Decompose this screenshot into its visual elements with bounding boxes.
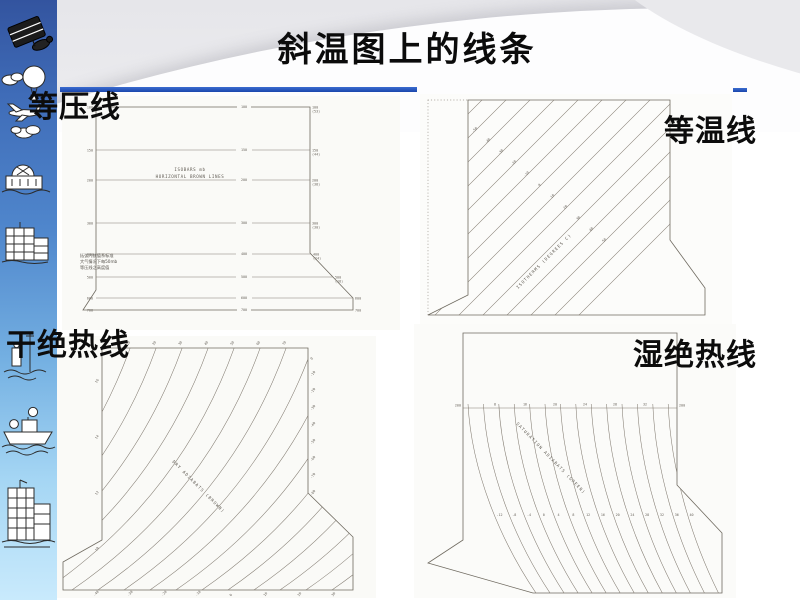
svg-text:-12: -12	[496, 513, 502, 517]
svg-text:-60: -60	[310, 455, 317, 462]
svg-text:(38): (38)	[312, 183, 320, 187]
moist-adiabat-label: 湿绝热线	[633, 330, 757, 374]
svg-text:24: 24	[583, 403, 587, 407]
dry-adiabat-label: 干绝热线	[6, 320, 130, 364]
isobars-diagram: 100100100(53)150150150(44)200200200(38)3…	[60, 98, 390, 330]
svg-text:20: 20	[152, 340, 158, 346]
svg-text:36: 36	[675, 513, 679, 517]
svg-text:(53): (53)	[312, 110, 320, 114]
isotherms-caption: ISOTHERMS (DEGREES C)	[515, 232, 572, 289]
cloud-icon-2	[11, 126, 40, 138]
svg-text:50: 50	[230, 340, 236, 346]
research-ship-icon	[2, 407, 55, 455]
svg-text:200: 200	[679, 404, 685, 408]
svg-text:括弧内数值系标准: 括弧内数值系标准	[80, 252, 114, 259]
svg-text:(44): (44)	[312, 153, 320, 157]
svg-text:大气情况下每50mb: 大气情况下每50mb	[80, 258, 118, 265]
svg-text:-40: -40	[484, 137, 491, 144]
svg-text:-70: -70	[310, 472, 317, 479]
cloud-icon	[2, 73, 23, 85]
svg-text:10: 10	[550, 193, 556, 199]
svg-text:600: 600	[87, 296, 93, 300]
svg-text:28: 28	[613, 403, 617, 407]
svg-text:100: 100	[241, 105, 247, 109]
svg-text:32: 32	[660, 513, 664, 517]
svg-text:300: 300	[87, 221, 93, 225]
svg-text:50: 50	[601, 237, 607, 243]
svg-text:16: 16	[523, 403, 527, 407]
svg-text:-4: -4	[527, 513, 531, 517]
isobar-label: 等压线	[28, 82, 121, 126]
svg-text:12: 12	[586, 513, 590, 517]
svg-text:500: 500	[87, 275, 93, 279]
svg-text:30: 30	[331, 591, 337, 597]
svg-text:14: 14	[94, 434, 100, 440]
svg-text:200: 200	[455, 404, 461, 408]
svg-text:-30: -30	[127, 590, 134, 597]
svg-text:-50: -50	[310, 438, 317, 445]
svg-text:-50: -50	[471, 126, 478, 133]
svg-text:16: 16	[94, 378, 100, 384]
svg-text:30: 30	[178, 340, 184, 346]
svg-text:-40: -40	[93, 590, 100, 597]
svg-text:300: 300	[241, 221, 247, 225]
isobars-caption-line2: HORIZONTAL BROWN LINES	[156, 174, 225, 179]
dry-adiabats-diagram: 102030405060700-10-20-30-40-50-60-70-80-…	[50, 340, 365, 598]
svg-text:(18): (18)	[335, 280, 343, 284]
svg-text:0: 0	[543, 513, 545, 517]
svg-text:-30: -30	[310, 404, 317, 411]
isotherm-label: 等温线	[664, 106, 757, 150]
svg-text:12: 12	[94, 490, 100, 496]
svg-text:200: 200	[241, 178, 247, 182]
svg-text:40: 40	[204, 340, 210, 346]
svg-text:24: 24	[630, 513, 634, 517]
svg-text:(30): (30)	[312, 226, 320, 230]
svg-text:(24): (24)	[313, 257, 321, 261]
svg-text:400: 400	[241, 252, 247, 256]
svg-text:600: 600	[355, 296, 361, 300]
svg-text:600: 600	[241, 296, 247, 300]
svg-text:30: 30	[575, 215, 581, 221]
svg-text:8: 8	[572, 513, 574, 517]
svg-text:-8: -8	[512, 513, 516, 517]
svg-text:70: 70	[282, 340, 288, 346]
isobars-caption-line1: ISOBARS mb	[174, 167, 205, 172]
svg-text:10: 10	[94, 546, 100, 552]
svg-text:60: 60	[256, 340, 262, 346]
radar-station-icon	[2, 165, 50, 194]
svg-text:700: 700	[87, 308, 93, 312]
svg-text:20: 20	[616, 513, 620, 517]
svg-text:20: 20	[553, 403, 557, 407]
svg-text:700: 700	[355, 308, 361, 312]
svg-text:40: 40	[588, 226, 594, 232]
svg-text:0: 0	[310, 357, 314, 361]
svg-text:-40: -40	[310, 421, 317, 428]
svg-text:700: 700	[241, 308, 247, 312]
page-title: 斜温图上的线条	[57, 22, 757, 71]
satellite-icon	[7, 14, 54, 58]
dry-adiabats-caption: DRY ADIABATS (BROWN)	[171, 459, 226, 514]
svg-text:20: 20	[297, 591, 303, 597]
svg-text:20: 20	[563, 204, 569, 210]
svg-text:500: 500	[241, 275, 247, 279]
svg-text:-30: -30	[497, 148, 504, 155]
svg-text:200: 200	[87, 178, 93, 182]
svg-text:150: 150	[241, 148, 247, 152]
svg-text:40: 40	[689, 513, 693, 517]
moist-adiabats-caption: SATURATION ADIABATS (GREEN)	[515, 421, 587, 495]
svg-text:-20: -20	[310, 387, 317, 394]
svg-text:8: 8	[494, 403, 496, 407]
svg-text:28: 28	[645, 513, 649, 517]
svg-text:4: 4	[558, 513, 560, 517]
institute-building-icon	[2, 480, 55, 547]
city-building-icon	[2, 222, 48, 264]
svg-text:0: 0	[229, 593, 233, 597]
svg-text:150: 150	[87, 148, 93, 152]
svg-text:等压线之高度值: 等压线之高度值	[80, 264, 109, 271]
svg-text:-20: -20	[161, 590, 168, 597]
title-underline-dash	[733, 88, 747, 92]
svg-text:-20: -20	[510, 159, 517, 166]
svg-text:10: 10	[263, 591, 269, 597]
svg-text:32: 32	[643, 403, 647, 407]
svg-text:-10: -10	[195, 590, 202, 597]
svg-text:-10: -10	[523, 171, 530, 178]
svg-text:-10: -10	[310, 370, 317, 377]
svg-text:-80: -80	[310, 489, 317, 496]
svg-text:16: 16	[601, 513, 605, 517]
